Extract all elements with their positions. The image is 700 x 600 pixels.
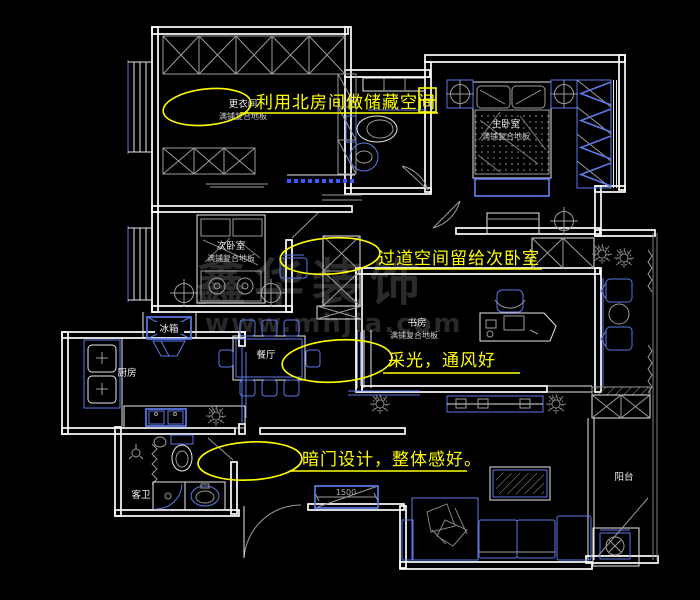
entry-door-arc xyxy=(244,505,301,558)
annotation-note-3: 采光，通风好 xyxy=(388,351,496,371)
room-label-balcony: 阳台 xyxy=(614,471,633,483)
plant-icon xyxy=(592,244,612,264)
plant-icon xyxy=(614,248,634,268)
room-label-master: 主卧室 xyxy=(492,118,521,130)
annotation-ellipse-4 xyxy=(197,439,303,482)
room-label-guest-bath: 客卫 xyxy=(131,489,151,501)
ceiling-symbol xyxy=(170,279,198,307)
balcony-chairs xyxy=(601,279,632,350)
dressing-wardrobe-bottom xyxy=(163,148,268,187)
annotation-note-1: 利用北房间做储藏空间 xyxy=(256,93,436,113)
floor-plan-canvas: 鑫华装饰 www.mhjia.com xyxy=(0,0,700,600)
annotation-ellipse-3 xyxy=(281,336,394,386)
master-door-arc xyxy=(433,201,460,228)
plant-icon xyxy=(206,406,226,426)
annotation-note-2: 过道空间留给次卧室 xyxy=(378,249,540,269)
master-wardrobe xyxy=(577,80,620,188)
kitchen-sink xyxy=(124,406,245,428)
stove xyxy=(84,340,120,408)
dressing-wardrobe-top xyxy=(163,36,345,74)
tv-cabinet xyxy=(447,396,543,412)
round-table xyxy=(609,304,629,324)
study-closet xyxy=(532,238,594,268)
desk-chair xyxy=(497,290,523,312)
room-label-kitchen: 厨房 xyxy=(117,367,136,379)
coffee-table xyxy=(490,467,550,500)
bath-door-arc xyxy=(402,166,428,190)
dimension-1500: 1500 xyxy=(336,488,356,497)
sofa xyxy=(402,498,591,560)
dressing-cabinet-column xyxy=(338,74,356,174)
floor-label-master: 满铺复合地板 xyxy=(482,131,530,141)
ceiling-symbol xyxy=(446,80,474,108)
master-bed xyxy=(473,82,551,178)
plant-icon xyxy=(370,394,390,414)
floor-label-second: 满铺复合地板 xyxy=(207,253,255,263)
shower-head-icon xyxy=(132,449,140,457)
room-label-dressing: 更衣间 xyxy=(229,98,258,110)
bay-window-dressing xyxy=(128,60,152,154)
floor-label-study: 满铺复合地板 xyxy=(390,330,438,340)
fridge-label: 冰箱 xyxy=(159,323,178,335)
master-dresser xyxy=(487,213,539,234)
shower-screen xyxy=(152,444,157,484)
bed-bench xyxy=(475,179,549,196)
balcony-hatch-wall xyxy=(592,387,650,418)
room-label-second: 次卧室 xyxy=(217,240,246,252)
plant-icon xyxy=(546,394,566,414)
ceiling-symbol xyxy=(550,80,578,108)
room-label-dining: 餐厅 xyxy=(256,349,276,361)
second-bedroom-door xyxy=(292,213,318,238)
toilet-tank xyxy=(171,435,193,444)
study-desk xyxy=(480,290,556,341)
room-label-study: 书房 xyxy=(407,317,426,329)
bay-window-second-bedroom xyxy=(128,226,152,302)
ceiling-symbol xyxy=(550,207,578,235)
annotation-note-4: 暗门设计，整体感好。 xyxy=(302,450,482,470)
master-bath-fixtures xyxy=(346,78,427,171)
fridge xyxy=(147,317,191,356)
shower-pan xyxy=(156,484,182,509)
